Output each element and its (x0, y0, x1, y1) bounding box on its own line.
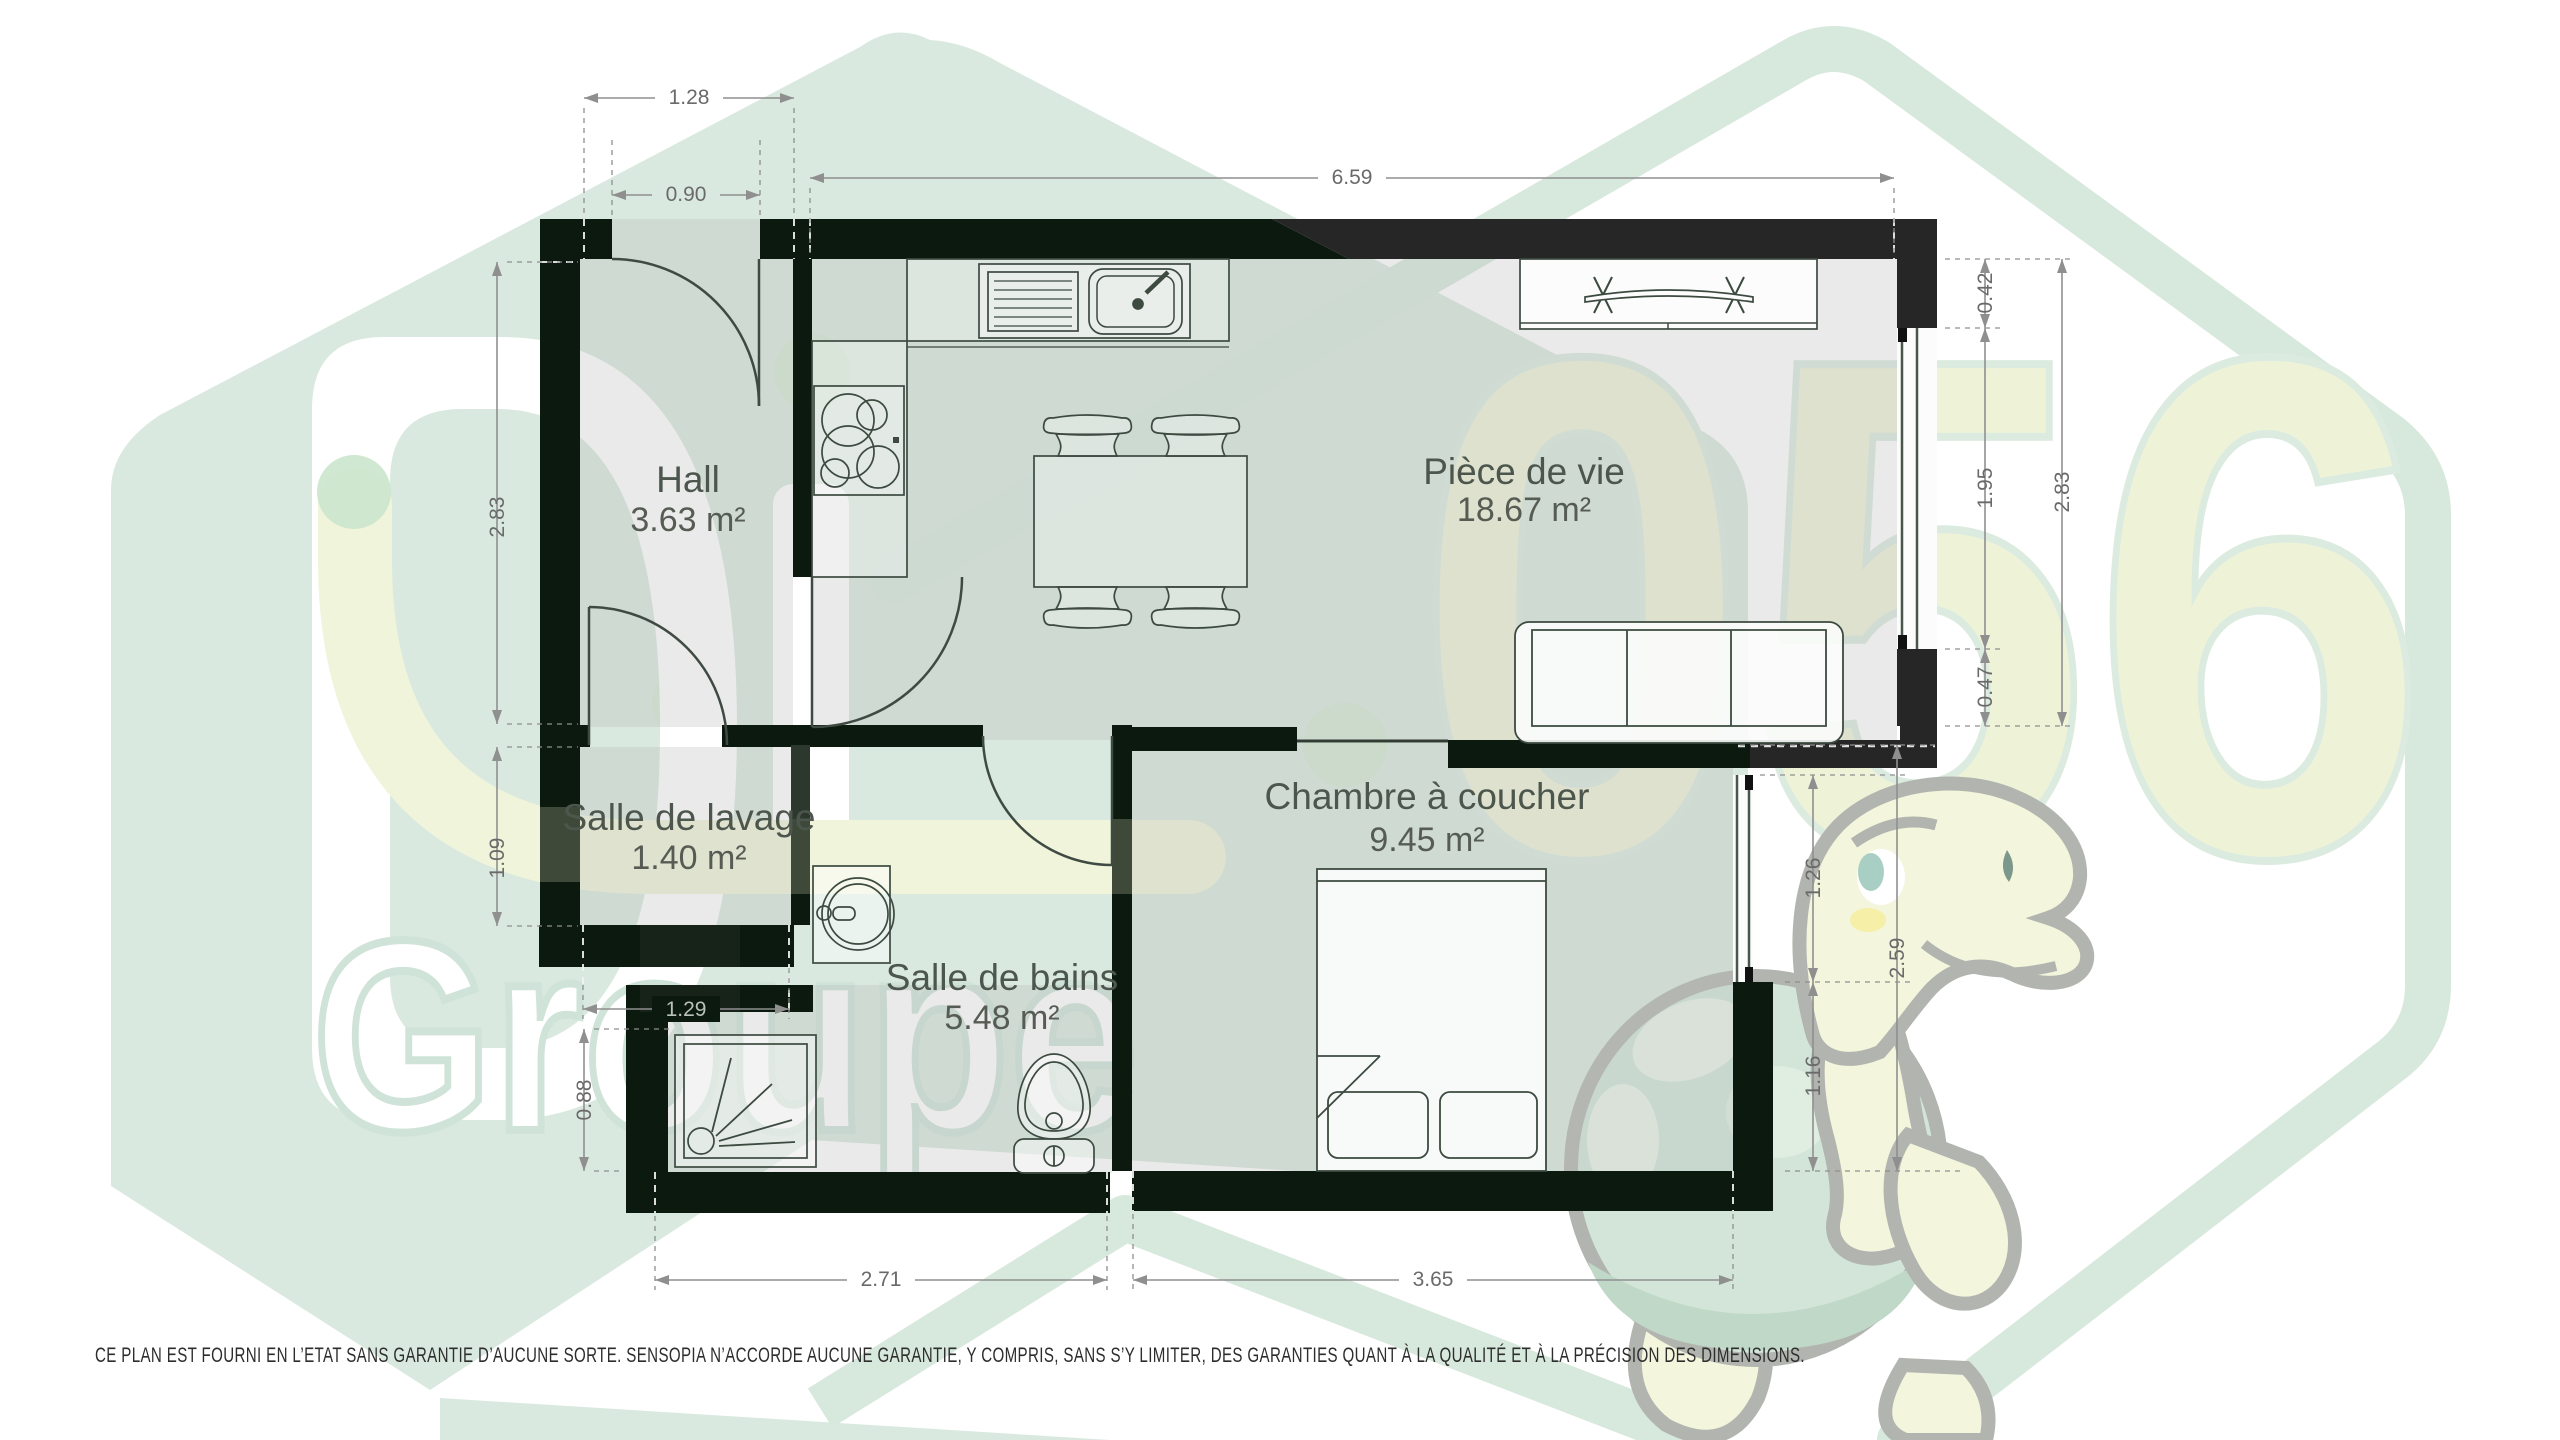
svg-text:Hall: Hall (656, 459, 720, 500)
svg-text:2.59: 2.59 (1886, 938, 1909, 979)
svg-text:1.95: 1.95 (1974, 468, 1997, 509)
svg-text:2.83: 2.83 (2051, 472, 2074, 513)
svg-text:Salle de lavage: Salle de lavage (562, 797, 815, 838)
svg-text:2.83: 2.83 (486, 497, 509, 538)
svg-text:5.48 m²: 5.48 m² (944, 999, 1059, 1037)
svg-text:0.88: 0.88 (573, 1080, 596, 1121)
svg-text:1.26: 1.26 (1802, 858, 1825, 899)
svg-text:18.67 m²: 18.67 m² (1457, 491, 1591, 529)
svg-text:1.29: 1.29 (666, 998, 707, 1021)
svg-text:1.09: 1.09 (486, 838, 509, 879)
svg-text:Salle de bains: Salle de bains (886, 957, 1118, 998)
svg-text:0.47: 0.47 (1974, 667, 1997, 708)
svg-text:2.71: 2.71 (861, 1268, 902, 1291)
svg-text:Pièce de vie: Pièce de vie (1423, 451, 1625, 492)
svg-text:6.59: 6.59 (1332, 166, 1373, 189)
svg-text:0.42: 0.42 (1974, 273, 1997, 314)
svg-text:1.16: 1.16 (1802, 1056, 1825, 1097)
svg-text:CE PLAN EST FOURNI EN L’ETAT S: CE PLAN EST FOURNI EN L’ETAT SANS GARANT… (95, 1344, 1805, 1367)
svg-text:1.40 m²: 1.40 m² (631, 839, 746, 877)
svg-text:1.28: 1.28 (669, 86, 710, 109)
svg-text:0.90: 0.90 (666, 183, 707, 206)
svg-text:9.45 m²: 9.45 m² (1369, 821, 1484, 859)
svg-text:3.65: 3.65 (1413, 1268, 1454, 1291)
svg-text:Chambre à coucher: Chambre à coucher (1265, 776, 1590, 817)
svg-text:3.63 m²: 3.63 m² (630, 501, 745, 539)
